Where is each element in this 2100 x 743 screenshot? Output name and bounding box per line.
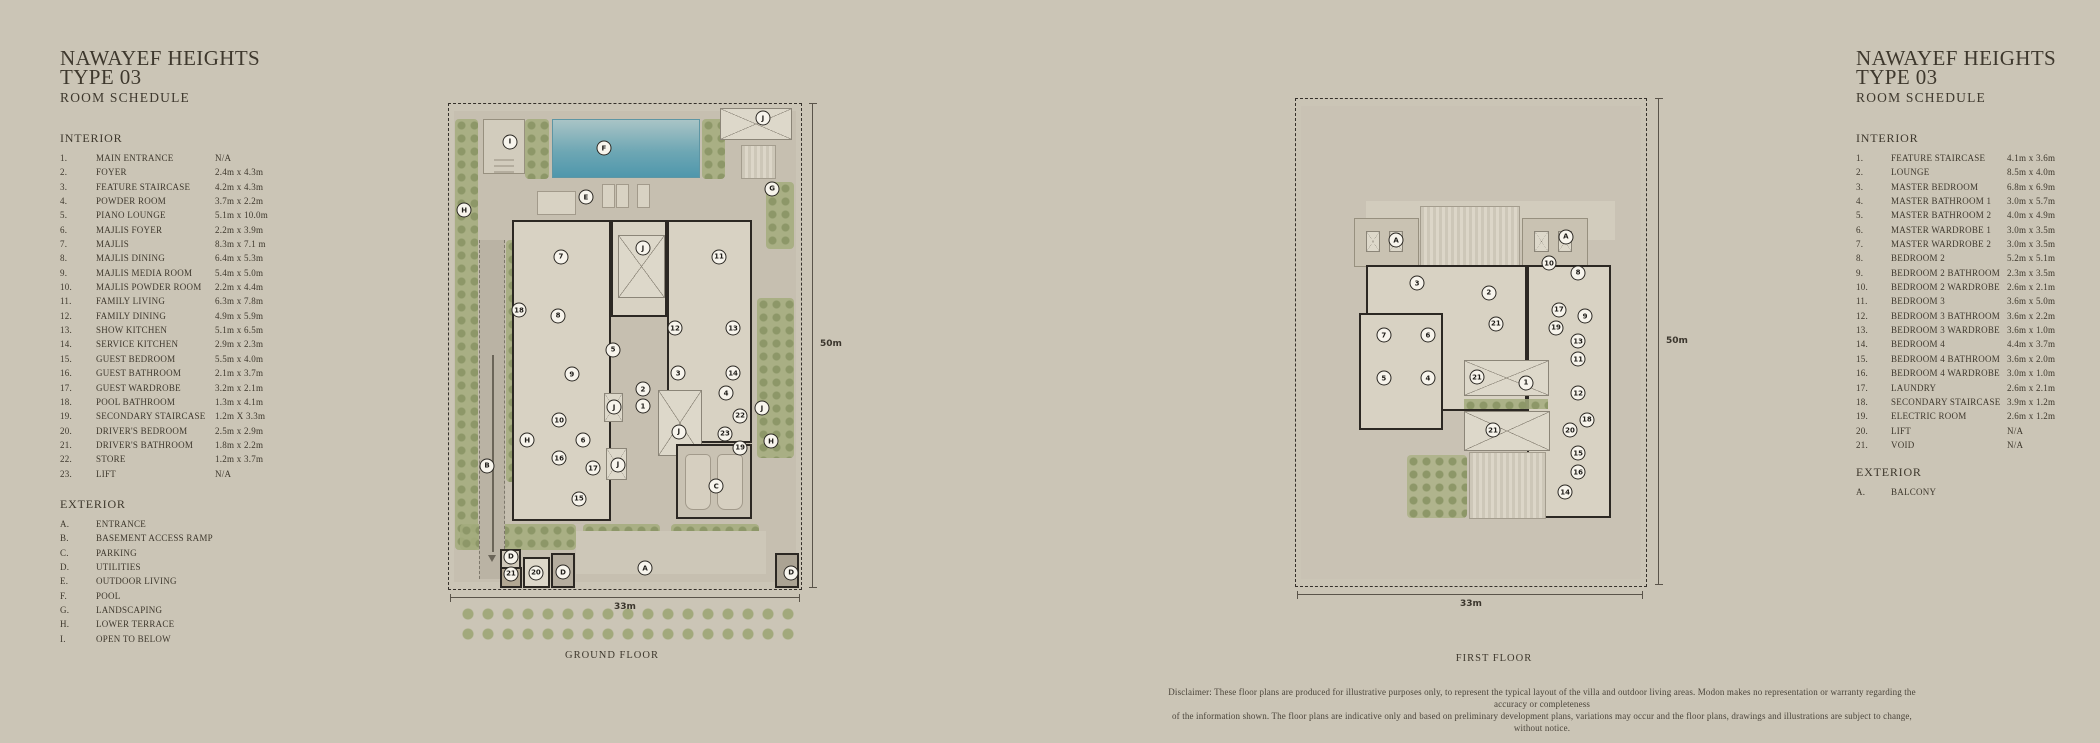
row-index: 5. [1856, 208, 1891, 222]
room-dimensions: 4.4m x 3.7m [2007, 337, 2096, 351]
plan-marker-5: 5 [606, 342, 621, 357]
plan-marker-B: B [480, 458, 495, 473]
room-dimensions: 2.2m x 3.9m [215, 223, 390, 237]
room-dimensions: N/A [215, 467, 390, 481]
row-index: 19. [1856, 409, 1891, 423]
plan-marker-17: 17 [585, 461, 600, 476]
room-dimensions: 2.3m x 3.5m [2007, 266, 2096, 280]
schedule-row: 3.FEATURE STAIRCASE4.2m x 4.3m [60, 180, 390, 194]
first-dim-label-50m: 50m [1666, 336, 1688, 346]
room-dimensions: 4.1m x 3.6m [2007, 151, 2096, 165]
row-index: 21. [1856, 438, 1891, 452]
room-dimensions: 6.8m x 6.9m [2007, 180, 2096, 194]
plan-marker-10: 10 [1542, 256, 1557, 271]
first-dim-line-33m [1297, 594, 1643, 595]
row-index: 16. [1856, 366, 1891, 380]
row-index: 23. [60, 467, 96, 481]
right-schedule-title: NAWAYEF HEIGHTS TYPE 03 [1856, 49, 2096, 87]
plan-marker-A: A [1558, 229, 1573, 244]
room-name: MASTER WARDROBE 2 [1891, 237, 2007, 251]
plan-marker-4: 4 [1420, 371, 1435, 386]
row-index: D. [60, 560, 96, 574]
room-dimensions: 2.6m x 2.1m [2007, 381, 2096, 395]
room-name: BEDROOM 4 BATHROOM [1891, 352, 2007, 366]
plan-marker-D: D [503, 549, 518, 564]
plan-marker-H: H [764, 434, 779, 449]
room-dimensions: N/A [215, 151, 390, 165]
row-index: 3. [60, 180, 96, 194]
row-index: 15. [1856, 352, 1891, 366]
room-name: POOL [96, 589, 215, 603]
schedule-row: A.BALCONY [1856, 485, 2096, 499]
room-dimensions: 5.4m x 5.0m [215, 266, 390, 280]
row-index: 13. [1856, 323, 1891, 337]
room-name: MASTER BATHROOM 2 [1891, 208, 2007, 222]
plan-marker-1: 1 [1518, 375, 1533, 390]
ground-dim-line-50m [812, 103, 813, 588]
row-index: 8. [1856, 251, 1891, 265]
row-index: I. [60, 632, 96, 646]
first-dim-label-33m: 33m [1460, 599, 1482, 609]
plan-marker-F: F [596, 141, 611, 156]
room-dimensions: 3.9m x 1.2m [2007, 395, 2096, 409]
row-index: 20. [60, 424, 96, 438]
room-dimensions: 3.2m x 2.1m [215, 381, 390, 395]
plan-marker-6: 6 [576, 433, 591, 448]
row-index: 3. [1856, 180, 1891, 194]
room-name: BALCONY [1891, 485, 2007, 499]
row-index: 9. [60, 266, 96, 280]
plan-marker-J: J [635, 241, 650, 256]
room-name: FOYER [96, 165, 215, 179]
plan-marker-15: 15 [571, 491, 586, 506]
plan-marker-10: 10 [552, 413, 567, 428]
room-dimensions: 5.1m x 6.5m [215, 323, 390, 337]
schedule-row: 2.FOYER2.4m x 4.3m [60, 165, 390, 179]
plan-marker-19: 19 [733, 440, 748, 455]
row-index: 4. [60, 194, 96, 208]
schedule-row: 17.GUEST WARDROBE3.2m x 2.1m [60, 381, 390, 395]
room-name: PIANO LOUNGE [96, 208, 215, 222]
room-name: BEDROOM 3 BATHROOM [1891, 309, 2007, 323]
room-dimensions: 5.5m x 4.0m [215, 352, 390, 366]
schedule-row: 7.MAJLIS8.3m x 7.1 m [60, 237, 390, 251]
ground-floor-label: GROUND FLOOR [565, 650, 659, 661]
plan-marker-18: 18 [1579, 412, 1594, 427]
row-index: 21. [60, 438, 96, 452]
plan-marker-E: E [578, 190, 593, 205]
room-dimensions: 2.6m x 1.2m [2007, 409, 2096, 423]
room-dimensions: 8.5m x 4.0m [2007, 165, 2096, 179]
row-index: A. [1856, 485, 1891, 499]
row-index: 22. [60, 452, 96, 466]
plan-marker-21: 21 [1488, 316, 1503, 331]
first-markers: AA3108217919132176115421112182021151614 [1296, 99, 1646, 586]
room-name: GUEST WARDROBE [96, 381, 215, 395]
row-index: 7. [60, 237, 96, 251]
schedule-row: 21.VOIDN/A [1856, 438, 2096, 452]
plan-marker-20: 20 [1563, 423, 1578, 438]
plan-marker-18: 18 [512, 303, 527, 318]
plan-marker-H: H [457, 203, 472, 218]
row-index: 12. [1856, 309, 1891, 323]
room-name: MASTER WARDROBE 1 [1891, 223, 2007, 237]
room-dimensions: N/A [2007, 438, 2096, 452]
room-dimensions: 3.7m x 2.2m [215, 194, 390, 208]
room-name: VOID [1891, 438, 2007, 452]
plan-marker-3: 3 [671, 366, 686, 381]
plan-marker-J: J [755, 111, 770, 126]
schedule-row: 23.LIFTN/A [60, 467, 390, 481]
plan-marker-9: 9 [1578, 309, 1593, 324]
ground-dim-label-50m: 50m [820, 339, 842, 349]
plan-marker-22: 22 [733, 408, 748, 423]
row-index: 14. [1856, 337, 1891, 351]
schedule-row: 22.STORE1.2m x 3.7m [60, 452, 390, 466]
plan-marker-17: 17 [1551, 302, 1566, 317]
room-name: FEATURE STAIRCASE [96, 180, 215, 194]
plan-marker-1: 1 [635, 399, 650, 414]
schedule-row: C.PARKING [60, 546, 390, 560]
room-dimensions: 5.2m x 5.1m [2007, 251, 2096, 265]
row-index: 2. [60, 165, 96, 179]
plan-marker-15: 15 [1571, 446, 1586, 461]
row-index: 12. [60, 309, 96, 323]
schedule-row: 6.MAJLIS FOYER2.2m x 3.9m [60, 223, 390, 237]
room-dimensions: 2.9m x 2.3m [215, 337, 390, 351]
schedule-row: 5.MASTER BATHROOM 24.0m x 4.9m [1856, 208, 2096, 222]
plan-marker-A: A [638, 561, 653, 576]
plan-marker-G: G [765, 181, 780, 196]
row-index: 2. [1856, 165, 1891, 179]
row-index: 5. [60, 208, 96, 222]
room-dimensions: N/A [2007, 424, 2096, 438]
plan-marker-2: 2 [635, 382, 650, 397]
left-schedule-subtitle: ROOM SCHEDULE [60, 90, 400, 106]
schedule-row: 7.MASTER WARDROBE 23.0m x 3.5m [1856, 237, 2096, 251]
disclaimer: Disclaimer: These floor plans are produc… [1168, 686, 1916, 734]
first-floor-label: FIRST FLOOR [1456, 653, 1532, 664]
room-name: MAIN ENTRANCE [96, 151, 215, 165]
room-dimensions: 3.6m x 5.0m [2007, 294, 2096, 308]
room-dimensions: 2.4m x 4.3m [215, 165, 390, 179]
schedule-row: 18.POOL BATHROOM1.3m x 4.1m [60, 395, 390, 409]
schedule-row: 4.POWDER ROOM3.7m x 2.2m [60, 194, 390, 208]
room-name: DRIVER'S BATHROOM [96, 438, 215, 452]
plan-marker-16: 16 [552, 451, 567, 466]
schedule-row: H.LOWER TERRACE [60, 617, 390, 631]
schedule-row: 20.DRIVER'S BEDROOM2.5m x 2.9m [60, 424, 390, 438]
row-index: 6. [60, 223, 96, 237]
room-dimensions: 3.6m x 1.0m [2007, 323, 2096, 337]
schedule-row: 16.GUEST BATHROOM2.1m x 3.7m [60, 366, 390, 380]
row-index: 10. [1856, 280, 1891, 294]
room-dimensions: 1.3m x 4.1m [215, 395, 390, 409]
room-dimensions: 1.8m x 2.2m [215, 438, 390, 452]
row-index: 4. [1856, 194, 1891, 208]
room-name: GUEST BATHROOM [96, 366, 215, 380]
room-dimensions: 2.5m x 2.9m [215, 424, 390, 438]
first-floor-plan: AA3108217919132176115421112182021151614 [1295, 98, 1647, 587]
room-name: MAJLIS MEDIA ROOM [96, 266, 215, 280]
row-index: G. [60, 603, 96, 617]
right-exterior-heading: EXTERIOR [1856, 465, 1922, 480]
room-name: LOWER TERRACE [96, 617, 215, 631]
plan-marker-13: 13 [726, 321, 741, 336]
left-schedule-title: NAWAYEF HEIGHTS TYPE 03 [60, 49, 400, 87]
room-dimensions: 5.1m x 10.0m [215, 208, 390, 222]
room-name: FAMILY DINING [96, 309, 215, 323]
room-name: BEDROOM 4 [1891, 337, 2007, 351]
plan-marker-I: I [502, 134, 517, 149]
plan-marker-23: 23 [717, 426, 732, 441]
plan-marker-11: 11 [1571, 352, 1586, 367]
schedule-row: 21.DRIVER'S BATHROOM1.8m x 2.2m [60, 438, 390, 452]
schedule-row: D.UTILITIES [60, 560, 390, 574]
plan-marker-H: H [520, 433, 535, 448]
room-name: OUTDOOR LIVING [96, 574, 215, 588]
room-name: MAJLIS DINING [96, 251, 215, 265]
schedule-row: 10.BEDROOM 2 WARDROBE2.6m x 2.1m [1856, 280, 2096, 294]
ground-dim-label-33m: 33m [614, 602, 636, 612]
schedule-row: 11.FAMILY LIVING6.3m x 7.8m [60, 294, 390, 308]
schedule-row: F.POOL [60, 589, 390, 603]
room-name: SHOW KITCHEN [96, 323, 215, 337]
plan-marker-7: 7 [553, 249, 568, 264]
ground-markers: IFJEGH7J11188121359321J1441022JHB623J161… [449, 104, 801, 589]
plan-marker-9: 9 [564, 367, 579, 382]
plan-marker-J: J [754, 401, 769, 416]
plan-marker-8: 8 [1571, 265, 1586, 280]
row-index: F. [60, 589, 96, 603]
schedule-row: 14.SERVICE KITCHEN2.9m x 2.3m [60, 337, 390, 351]
room-name: MAJLIS POWDER ROOM [96, 280, 215, 294]
room-name: MASTER BEDROOM [1891, 180, 2007, 194]
room-name: UTILITIES [96, 560, 215, 574]
ground-floor-plan: IFJEGH7J11188121359321J1441022JHB623J161… [448, 103, 802, 590]
room-dimensions: 1.2m X 3.3m [215, 409, 390, 423]
schedule-row: 5.PIANO LOUNGE5.1m x 10.0m [60, 208, 390, 222]
plan-marker-11: 11 [711, 249, 726, 264]
room-name: SECONDARY STAIRCASE [96, 409, 215, 423]
plan-marker-4: 4 [719, 386, 734, 401]
plan-marker-7: 7 [1376, 328, 1391, 343]
schedule-row: 4.MASTER BATHROOM 13.0m x 5.7m [1856, 194, 2096, 208]
row-index: 1. [60, 151, 96, 165]
room-dimensions: 6.3m x 7.8m [215, 294, 390, 308]
first-dim-line-50m [1658, 98, 1659, 585]
schedule-row: 17.LAUNDRY2.6m x 2.1m [1856, 381, 2096, 395]
row-index: 8. [60, 251, 96, 265]
row-index: 1. [1856, 151, 1891, 165]
plan-marker-14: 14 [1558, 485, 1573, 500]
row-index: 13. [60, 323, 96, 337]
room-name: LIFT [1891, 424, 2007, 438]
room-dimensions: 3.0m x 1.0m [2007, 366, 2096, 380]
room-dimensions: 3.6m x 2.2m [2007, 309, 2096, 323]
plan-marker-A: A [1389, 233, 1404, 248]
plan-marker-5: 5 [1376, 371, 1391, 386]
room-name: LOUNGE [1891, 165, 2007, 179]
room-name: POOL BATHROOM [96, 395, 215, 409]
plan-marker-14: 14 [726, 366, 741, 381]
row-index: 11. [60, 294, 96, 308]
schedule-row: 19.SECONDARY STAIRCASE1.2m X 3.3m [60, 409, 390, 423]
plan-marker-J: J [610, 457, 625, 472]
row-index: H. [60, 617, 96, 631]
room-name: OPEN TO BELOW [96, 632, 215, 646]
schedule-row: 13.SHOW KITCHEN5.1m x 6.5m [60, 323, 390, 337]
schedule-row: 1.MAIN ENTRANCEN/A [60, 151, 390, 165]
plan-marker-3: 3 [1410, 276, 1425, 291]
schedule-row: 20.LIFTN/A [1856, 424, 2096, 438]
schedule-row: 13.BEDROOM 3 WARDROBE3.6m x 1.0m [1856, 323, 2096, 337]
room-name: BEDROOM 3 [1891, 294, 2007, 308]
plan-marker-21: 21 [1469, 370, 1484, 385]
plan-marker-21: 21 [1486, 423, 1501, 438]
schedule-row: 14.BEDROOM 44.4m x 3.7m [1856, 337, 2096, 351]
room-name: BEDROOM 4 WARDROBE [1891, 366, 2007, 380]
plan-marker-21: 21 [503, 566, 518, 581]
row-index: 19. [60, 409, 96, 423]
room-name: MAJLIS FOYER [96, 223, 215, 237]
row-index: 7. [1856, 237, 1891, 251]
plan-marker-D: D [556, 565, 571, 580]
row-index: 6. [1856, 223, 1891, 237]
schedule-row: 16.BEDROOM 4 WARDROBE3.0m x 1.0m [1856, 366, 2096, 380]
schedule-row: 3.MASTER BEDROOM6.8m x 6.9m [1856, 180, 2096, 194]
plan-marker-13: 13 [1571, 334, 1586, 349]
room-name: BEDROOM 3 WARDROBE [1891, 323, 2007, 337]
schedule-row: I.OPEN TO BELOW [60, 632, 390, 646]
schedule-row: 15.GUEST BEDROOM5.5m x 4.0m [60, 352, 390, 366]
schedule-row: B.BASEMENT ACCESS RAMP [60, 531, 390, 545]
row-index: 10. [60, 280, 96, 294]
schedule-row: 12.FAMILY DINING4.9m x 5.9m [60, 309, 390, 323]
plan-marker-8: 8 [551, 308, 566, 323]
row-index: 18. [60, 395, 96, 409]
right-interior-list: 1.FEATURE STAIRCASE4.1m x 3.6m2.LOUNGE8.… [1856, 151, 2096, 452]
row-index: E. [60, 574, 96, 588]
room-name: STORE [96, 452, 215, 466]
left-exterior-list: A.ENTRANCEB.BASEMENT ACCESS RAMPC.PARKIN… [60, 517, 390, 646]
room-name: BEDROOM 2 [1891, 251, 2007, 265]
room-name: PARKING [96, 546, 215, 560]
room-name: GUEST BEDROOM [96, 352, 215, 366]
room-dimensions: 4.2m x 4.3m [215, 180, 390, 194]
room-name: SECONDARY STAIRCASE [1891, 395, 2007, 409]
room-dimensions: 2.6m x 2.1m [2007, 280, 2096, 294]
row-index: A. [60, 517, 96, 531]
plan-marker-20: 20 [528, 565, 543, 580]
schedule-row: 18.SECONDARY STAIRCASE3.9m x 1.2m [1856, 395, 2096, 409]
schedule-row: E.OUTDOOR LIVING [60, 574, 390, 588]
room-name: FAMILY LIVING [96, 294, 215, 308]
row-index: 17. [1856, 381, 1891, 395]
plan-marker-J: J [671, 424, 686, 439]
schedule-row: 1.FEATURE STAIRCASE4.1m x 3.6m [1856, 151, 2096, 165]
disclaimer-line-1: Disclaimer: These floor plans are produc… [1168, 686, 1916, 710]
room-dimensions: 1.2m x 3.7m [215, 452, 390, 466]
room-name: DRIVER'S BEDROOM [96, 424, 215, 438]
row-index: 9. [1856, 266, 1891, 280]
plan-marker-D: D [784, 565, 799, 580]
right-exterior-list: A.BALCONY [1856, 485, 2096, 499]
row-index: 15. [60, 352, 96, 366]
room-name: ENTRANCE [96, 517, 215, 531]
room-name: LANDSCAPING [96, 603, 215, 617]
row-index: 18. [1856, 395, 1891, 409]
room-name: MAJLIS [96, 237, 215, 251]
right-schedule-subtitle: ROOM SCHEDULE [1856, 90, 2096, 106]
schedule-row: 15.BEDROOM 4 BATHROOM3.6m x 2.0m [1856, 352, 2096, 366]
schedule-row: 8.MAJLIS DINING6.4m x 5.3m [60, 251, 390, 265]
room-dimensions: 3.6m x 2.0m [2007, 352, 2096, 366]
schedule-row: G.LANDSCAPING [60, 603, 390, 617]
plan-marker-6: 6 [1420, 328, 1435, 343]
ground-dim-line-33m [450, 597, 800, 598]
row-index: C. [60, 546, 96, 560]
schedule-row: A.ENTRANCE [60, 517, 390, 531]
disclaimer-line-2: of the information shown. The floor plan… [1168, 710, 1916, 734]
room-name: LIFT [96, 467, 215, 481]
room-dimensions: 6.4m x 5.3m [215, 251, 390, 265]
room-name: POWDER ROOM [96, 194, 215, 208]
right-schedule: NAWAYEF HEIGHTS TYPE 03 ROOM SCHEDULE [1856, 49, 2096, 106]
schedule-row: 11.BEDROOM 33.6m x 5.0m [1856, 294, 2096, 308]
row-index: 11. [1856, 294, 1891, 308]
schedule-row: 9.BEDROOM 2 BATHROOM2.3m x 3.5m [1856, 266, 2096, 280]
room-name: FEATURE STAIRCASE [1891, 151, 2007, 165]
schedule-row: 8.BEDROOM 25.2m x 5.1m [1856, 251, 2096, 265]
plan-marker-12: 12 [667, 321, 682, 336]
row-index: 14. [60, 337, 96, 351]
schedule-row: 6.MASTER WARDROBE 13.0m x 3.5m [1856, 223, 2096, 237]
room-dimensions: 3.0m x 3.5m [2007, 237, 2096, 251]
plan-marker-16: 16 [1571, 465, 1586, 480]
brochure-page: NAWAYEF HEIGHTS TYPE 03 ROOM SCHEDULE IN… [0, 0, 2100, 743]
room-name: MASTER BATHROOM 1 [1891, 194, 2007, 208]
room-dimensions: 2.2m x 4.4m [215, 280, 390, 294]
room-dimensions: 3.0m x 5.7m [2007, 194, 2096, 208]
room-dimensions: 2.1m x 3.7m [215, 366, 390, 380]
room-dimensions: 4.0m x 4.9m [2007, 208, 2096, 222]
room-dimensions: 8.3m x 7.1 m [215, 237, 390, 251]
schedule-row: 10.MAJLIS POWDER ROOM2.2m x 4.4m [60, 280, 390, 294]
left-interior-heading: INTERIOR [60, 131, 122, 146]
plan-marker-2: 2 [1481, 285, 1496, 300]
right-interior-heading: INTERIOR [1856, 131, 1918, 146]
plan-marker-12: 12 [1571, 386, 1586, 401]
left-exterior-heading: EXTERIOR [60, 497, 126, 512]
room-dimensions: 3.0m x 3.5m [2007, 223, 2096, 237]
room-name: BEDROOM 2 BATHROOM [1891, 266, 2007, 280]
schedule-row: 9.MAJLIS MEDIA ROOM5.4m x 5.0m [60, 266, 390, 280]
row-index: 16. [60, 366, 96, 380]
row-index: B. [60, 531, 96, 545]
room-dimensions: 4.9m x 5.9m [215, 309, 390, 323]
left-interior-list: 1.MAIN ENTRANCEN/A2.FOYER2.4m x 4.3m3.FE… [60, 151, 390, 481]
schedule-row: 19.ELECTRIC ROOM2.6m x 1.2m [1856, 409, 2096, 423]
room-name: SERVICE KITCHEN [96, 337, 215, 351]
plan-marker-J: J [607, 400, 622, 415]
left-schedule: NAWAYEF HEIGHTS TYPE 03 ROOM SCHEDULE [60, 49, 400, 106]
row-index: 20. [1856, 424, 1891, 438]
schedule-row: 2.LOUNGE8.5m x 4.0m [1856, 165, 2096, 179]
schedule-row: 12.BEDROOM 3 BATHROOM3.6m x 2.2m [1856, 309, 2096, 323]
room-name: BEDROOM 2 WARDROBE [1891, 280, 2007, 294]
row-index: 17. [60, 381, 96, 395]
